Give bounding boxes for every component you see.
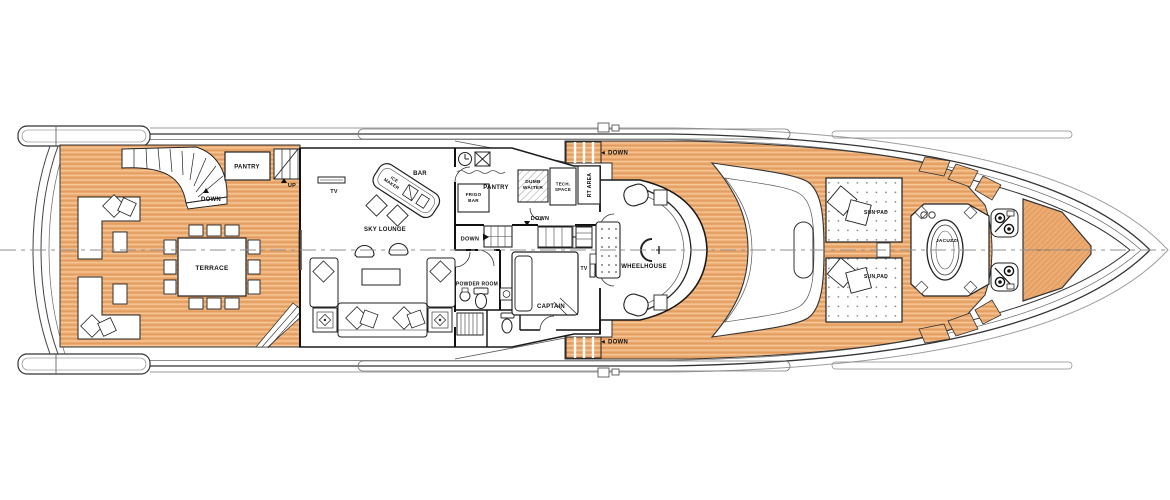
captain-label: CAPTAIN — [537, 304, 565, 310]
frigo-bar-label: BAR — [468, 198, 479, 203]
sun-pad-bottom-group — [826, 258, 902, 322]
wardrobe — [538, 227, 572, 247]
tech-space-label: SPACE — [555, 187, 571, 192]
tv-skylounge-label: TV — [330, 189, 338, 195]
tv-captain-label: TV — [581, 266, 588, 272]
chair — [164, 260, 176, 274]
lift-hatch — [483, 226, 512, 247]
chair — [189, 298, 203, 309]
chair — [225, 298, 239, 309]
chair — [248, 240, 260, 254]
service-down-label: DOWN — [531, 216, 549, 222]
chair — [248, 260, 260, 274]
side-table — [654, 295, 667, 310]
bed-pillow — [515, 256, 532, 311]
shower — [457, 313, 483, 335]
bulwark-detail-bottom — [832, 362, 1072, 369]
aft-down-label: DOWN — [201, 197, 221, 203]
windlass-starboard — [991, 263, 1018, 291]
chair — [207, 298, 221, 309]
chair — [164, 240, 176, 254]
side-table — [113, 284, 127, 304]
side-table — [113, 232, 127, 252]
chair — [189, 225, 203, 236]
deck-hardware — [612, 125, 619, 131]
walkway-down-label-port: ◄ DOWN — [600, 151, 628, 157]
aft-pantry-label: PANTRY — [234, 165, 260, 171]
windlass-port — [991, 209, 1018, 237]
lift-down-label: DOWN — [461, 237, 479, 243]
deck-hardware — [598, 368, 609, 377]
tech-space-label: TECH. — [556, 182, 570, 187]
wheelhouse-label: WHEELHOUSE — [621, 264, 667, 270]
chair — [164, 280, 176, 294]
terrace-label: TERRACE — [195, 265, 229, 272]
bar-label: BAR — [413, 171, 427, 177]
closet — [576, 227, 592, 247]
coffee-table — [362, 269, 400, 285]
pantry-main-label: PANTRY — [483, 185, 509, 191]
sun-pad-top-label: SUN PAD — [864, 210, 888, 216]
dumb-waiter-label: WAITER — [523, 185, 543, 191]
deck-plan-drawing: ICE MAKER — [0, 0, 1170, 500]
jacuzzi-label: JACUZZI — [936, 238, 958, 244]
sun-pad-bottom-label: SUN PAD — [864, 274, 888, 280]
rt-area-label: RT AREA — [587, 173, 593, 198]
walkway-down-label-starboard: ◄ DOWN — [600, 340, 628, 346]
deck-hardware — [612, 369, 619, 375]
side-table — [654, 190, 667, 205]
frigo-bar-label: FRIGO — [466, 192, 482, 197]
deck-hardware — [598, 123, 609, 132]
sky-lounge-label: SKY LOUNGE — [364, 227, 406, 233]
yacht-deck-plan: ICE MAKER — [0, 0, 1170, 500]
chair — [248, 280, 260, 294]
chair — [207, 225, 221, 236]
chair — [225, 225, 239, 236]
dumb-waiter-label: DUMB — [525, 179, 541, 185]
aft-up-label: UP — [288, 183, 296, 189]
lamp-table-right — [428, 308, 452, 332]
powder-room-label: POWDER ROOM — [456, 282, 498, 288]
bulwark-detail-top — [832, 131, 1072, 138]
lamp-table-left — [313, 308, 337, 332]
